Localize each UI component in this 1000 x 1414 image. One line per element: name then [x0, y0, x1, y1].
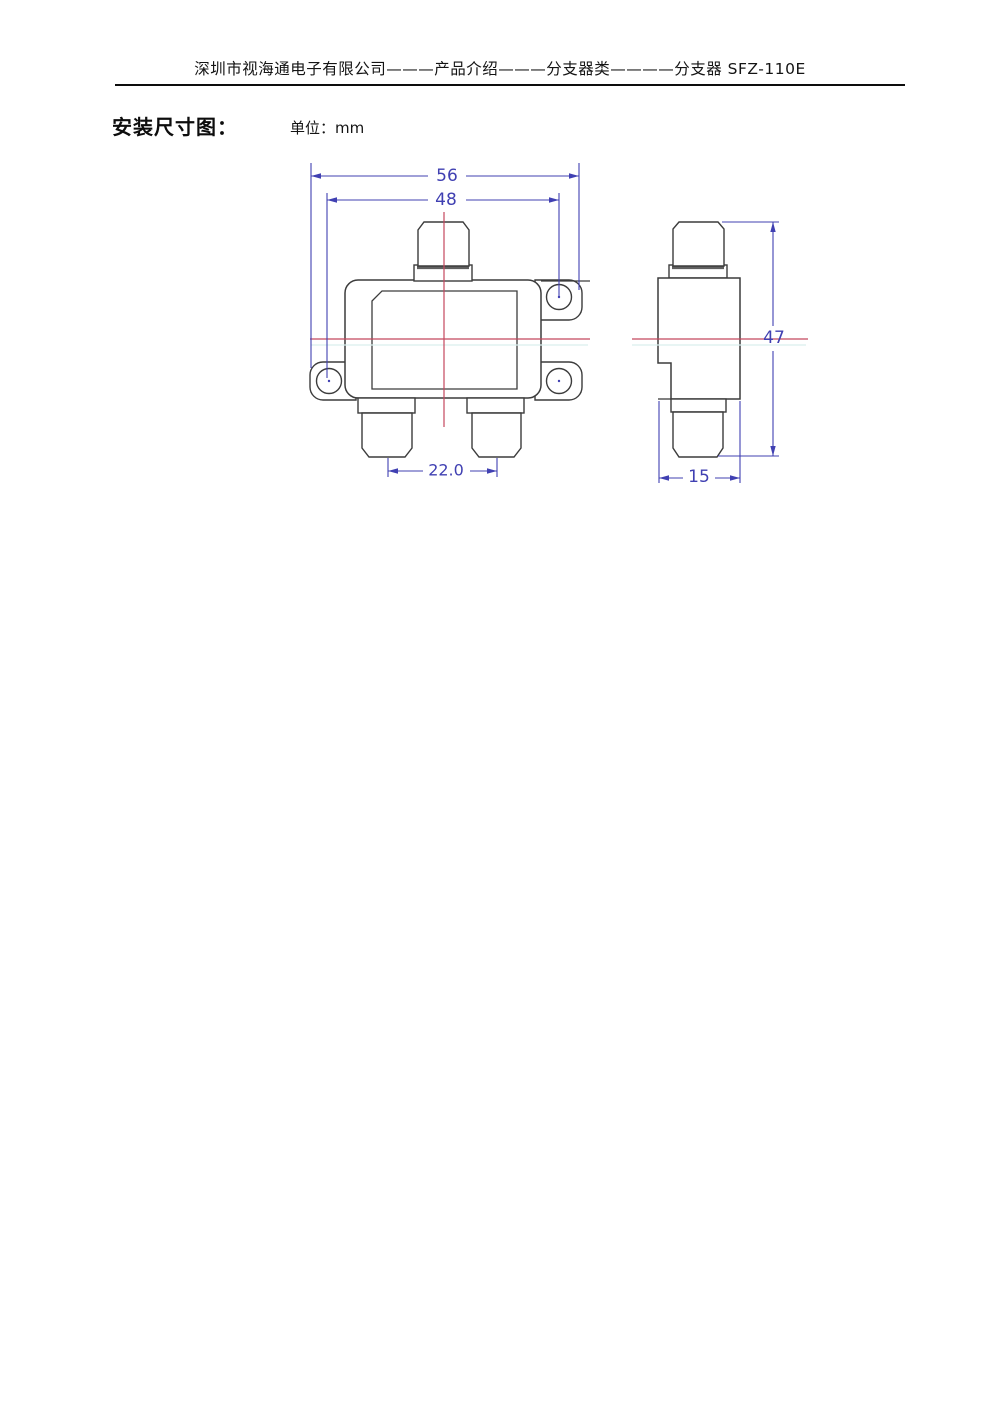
arrow-47-bottom	[770, 446, 775, 456]
dim-label-overall-width: 56	[436, 166, 458, 186]
hole-center-mark-bottom-right	[558, 380, 560, 382]
output-port-right-flange	[467, 398, 524, 413]
arrow-15-right	[730, 475, 740, 480]
input-port-side	[673, 222, 724, 266]
arrow-22-left	[388, 468, 398, 473]
hole-center-mark-bottom-left	[328, 380, 330, 382]
arrow-56-left	[311, 173, 321, 178]
dim-label-port-spacing: 22.0	[428, 461, 464, 480]
arrow-15-left	[659, 475, 669, 480]
installation-dimension-drawing: 56 48 22.0 47 15	[0, 0, 1000, 1414]
dim-label-overall-height: 47	[763, 328, 785, 348]
output-port-right	[472, 413, 521, 457]
output-port-flange-side	[671, 399, 726, 412]
hole-center-mark-top-right	[558, 296, 560, 298]
output-port-left	[362, 413, 412, 457]
arrow-22-right	[487, 468, 497, 473]
arrow-48-left	[327, 197, 337, 202]
datasheet-page: 深圳市视海通电子有限公司———产品介绍———分支器类————分支器 SFZ-11…	[0, 0, 1000, 1414]
arrow-48-right	[549, 197, 559, 202]
dim-label-hole-spacing: 48	[435, 190, 457, 210]
output-port-side	[673, 412, 723, 457]
dim-label-body-depth: 15	[688, 467, 710, 487]
arrow-47-top	[770, 222, 775, 232]
output-port-left-flange	[358, 398, 415, 413]
arrow-56-right	[569, 173, 579, 178]
